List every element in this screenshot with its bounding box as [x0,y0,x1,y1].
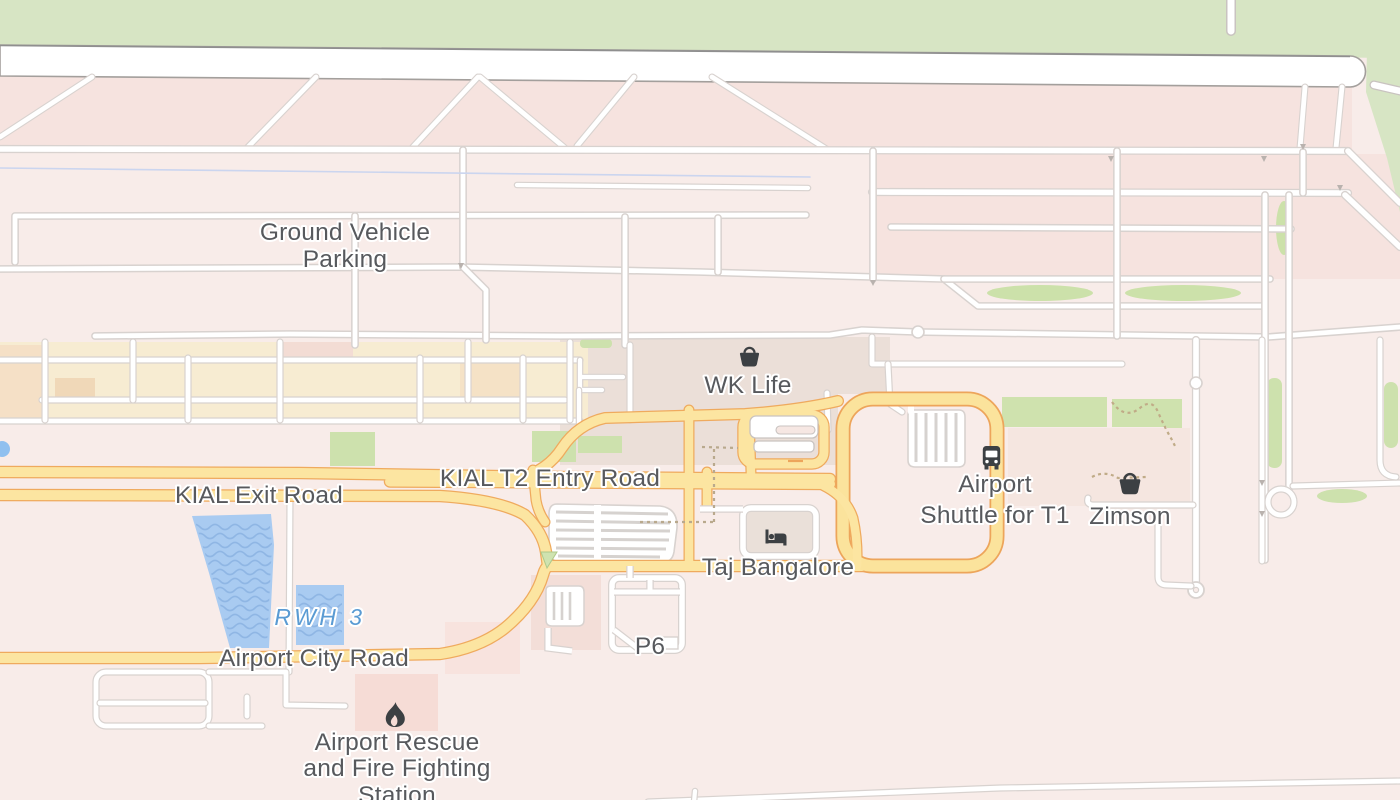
svg-text:Airport Rescue: Airport Rescue [315,729,480,756]
svg-text:P6: P6 [635,633,665,660]
svg-text:Airport City Road: Airport City Road [219,645,409,672]
svg-text:Taj Bangalore: Taj Bangalore [702,554,854,581]
svg-text:and Fire Fighting: and Fire Fighting [303,755,490,782]
svg-text:KIAL Exit Road: KIAL Exit Road [175,482,343,509]
svg-text:Airport: Airport [958,471,1032,498]
svg-text:Zimson: Zimson [1089,503,1171,530]
svg-text:WK Life: WK Life [704,372,791,399]
svg-text:Ground Vehicle: Ground Vehicle [260,219,430,246]
svg-text:Station: Station [358,782,436,800]
svg-text:Shuttle for T1: Shuttle for T1 [920,502,1069,529]
svg-text:RWH 3: RWH 3 [274,604,365,630]
svg-text:KIAL T2 Entry Road: KIAL T2 Entry Road [440,465,660,492]
svg-text:Parking: Parking [303,246,387,273]
